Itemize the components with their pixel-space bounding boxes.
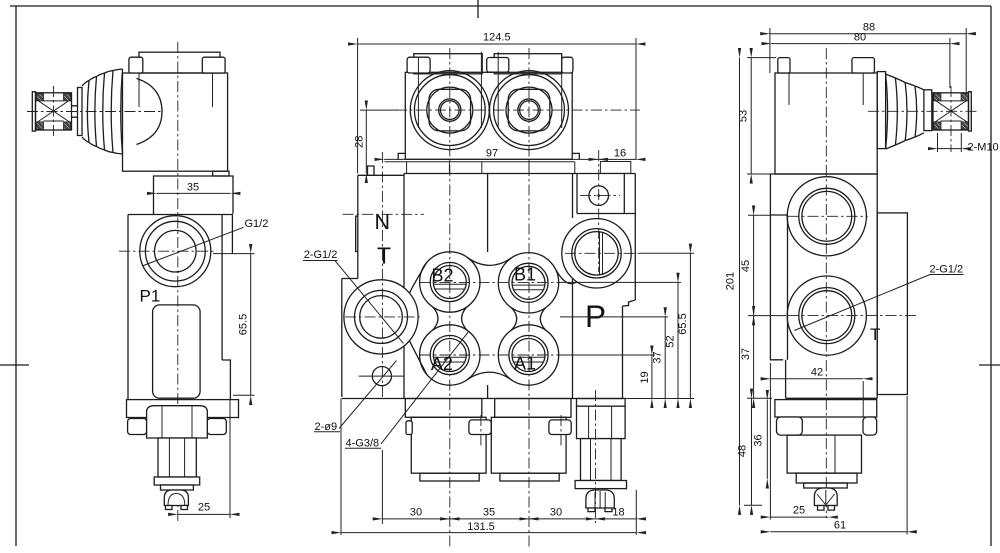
svg-text:36: 36: [753, 434, 765, 446]
svg-text:124.5: 124.5: [483, 32, 511, 44]
svg-text:18: 18: [612, 507, 624, 519]
svg-text:61: 61: [834, 520, 846, 532]
svg-text:A2: A2: [431, 354, 453, 374]
svg-text:97: 97: [486, 148, 498, 160]
svg-text:25: 25: [793, 505, 805, 517]
svg-text:30: 30: [410, 507, 422, 519]
svg-text:37: 37: [652, 351, 664, 363]
svg-text:2-G1/2: 2-G1/2: [930, 264, 964, 276]
svg-text:2-G1/2: 2-G1/2: [304, 249, 338, 261]
svg-text:131.5: 131.5: [467, 521, 495, 533]
svg-text:45: 45: [740, 260, 752, 272]
svg-text:65.5: 65.5: [238, 314, 250, 335]
svg-text:G1/2: G1/2: [245, 218, 269, 230]
svg-text:2-ø9: 2-ø9: [315, 421, 338, 433]
svg-text:P: P: [585, 298, 606, 334]
svg-text:52: 52: [664, 335, 676, 347]
svg-text:T: T: [377, 242, 391, 268]
svg-text:80: 80: [854, 31, 866, 43]
svg-text:35: 35: [187, 182, 199, 194]
svg-text:4-G3/8: 4-G3/8: [346, 438, 380, 450]
svg-text:201: 201: [725, 272, 737, 290]
svg-text:42: 42: [811, 367, 823, 379]
svg-text:48: 48: [737, 445, 749, 457]
svg-text:A1: A1: [514, 354, 536, 374]
svg-text:28: 28: [354, 136, 366, 148]
svg-text:2-M10: 2-M10: [968, 142, 999, 154]
svg-text:19: 19: [639, 371, 651, 383]
svg-text:B1: B1: [514, 265, 536, 285]
svg-text:37: 37: [740, 348, 752, 360]
svg-text:T: T: [870, 325, 880, 344]
svg-text:35: 35: [483, 507, 495, 519]
svg-text:65.5: 65.5: [677, 313, 689, 334]
svg-text:16: 16: [614, 148, 626, 160]
svg-text:25: 25: [198, 502, 210, 514]
svg-text:B2: B2: [432, 266, 454, 286]
svg-text:N: N: [375, 210, 391, 234]
svg-text:P1: P1: [140, 287, 161, 306]
svg-text:30: 30: [550, 507, 562, 519]
